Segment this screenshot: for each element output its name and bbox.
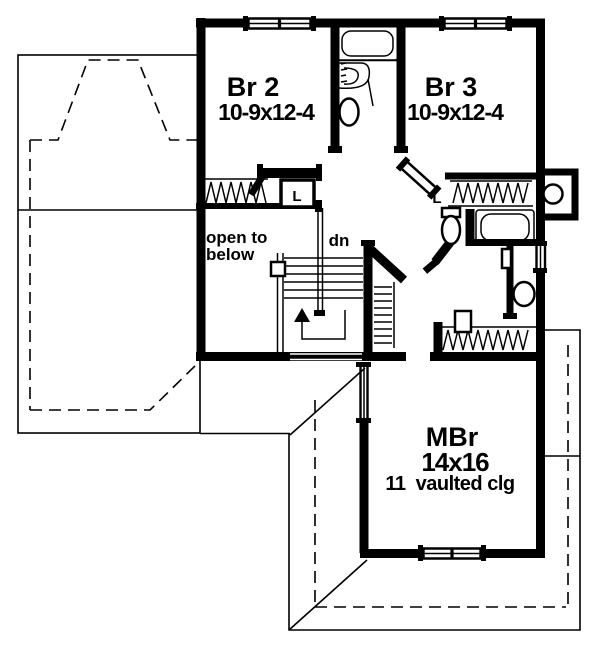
rail-end-cap — [314, 310, 325, 316]
linen-left-label: L — [292, 188, 301, 205]
newel-post — [271, 262, 285, 276]
window-mbr-left — [356, 362, 371, 423]
hall-bath-toilet — [340, 99, 359, 126]
wall-cap — [394, 146, 408, 153]
wall-cap — [361, 240, 375, 246]
linen-closet-right: L — [396, 156, 442, 207]
wall-cap — [503, 313, 517, 319]
vanity-side-line — [368, 79, 373, 106]
linen-right-label: L — [432, 190, 441, 207]
vanity-sink — [544, 185, 563, 204]
stair-dn-label: dn — [329, 231, 350, 250]
roof-edge-left-rect — [18, 55, 200, 433]
mbr-closet — [436, 311, 540, 350]
linen-top-wall — [262, 168, 318, 178]
water-closet-door-leaf — [502, 249, 511, 268]
roof-valley-lower — [289, 560, 367, 630]
br3-closet — [448, 181, 533, 206]
door-hinge-ticks — [341, 63, 347, 82]
master-toilet-bowl — [442, 216, 460, 244]
stair-treads — [284, 258, 363, 298]
mbr-door-leaf — [455, 311, 471, 332]
br3-dims: 10-9x12-4 — [407, 99, 504, 125]
wall-cap — [328, 146, 342, 153]
br3-name: Br 3 — [425, 72, 478, 102]
br2-name: Br 2 — [227, 72, 280, 102]
roof-hip-dashed-bottom — [30, 364, 197, 410]
water-closet-toilet — [514, 282, 535, 306]
window-mbr-bottom — [418, 545, 486, 561]
linen-closet-left: L — [257, 164, 322, 207]
roof-valley-upper — [290, 368, 365, 435]
wall-cap — [257, 164, 263, 181]
window-top-right — [439, 16, 512, 31]
closet-hanging-zigzag — [453, 183, 528, 203]
hall-bath-tub-inner — [342, 31, 393, 56]
hall-bathroom — [337, 26, 398, 126]
roof-hip-dashed-top — [30, 60, 198, 140]
window-right-wall — [533, 241, 547, 273]
roof-outline-left — [18, 55, 200, 433]
floor-plan-drawing: L L — [0, 0, 600, 650]
master-bath-tub-inner — [481, 214, 529, 241]
wall-cap — [316, 164, 322, 181]
br2-dims: 10-9x12-4 — [218, 99, 315, 125]
stair-angled-wall — [368, 247, 404, 280]
open-to-below-line2: below — [206, 245, 255, 264]
floor-plan-canvas: L L — [0, 0, 600, 650]
linen-shelves — [374, 282, 394, 348]
mbr-ceiling-note: 11 vaulted clg — [385, 473, 514, 495]
window-top-left — [243, 16, 316, 31]
